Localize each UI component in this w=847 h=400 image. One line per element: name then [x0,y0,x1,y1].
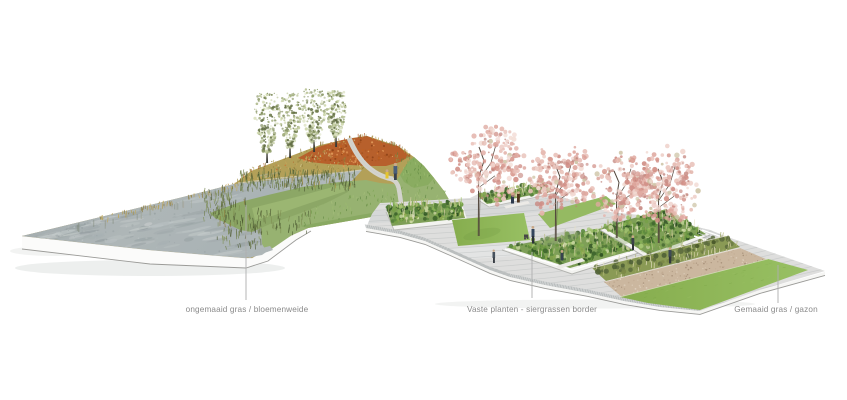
svg-text:ongemaaid gras / bloemenweide: ongemaaid gras / bloemenweide [186,305,309,314]
svg-text:Gemaaid gras / gazon: Gemaaid gras / gazon [734,305,818,314]
svg-text:Vaste planten - siergrassen bo: Vaste planten - siergrassen border [467,305,597,314]
